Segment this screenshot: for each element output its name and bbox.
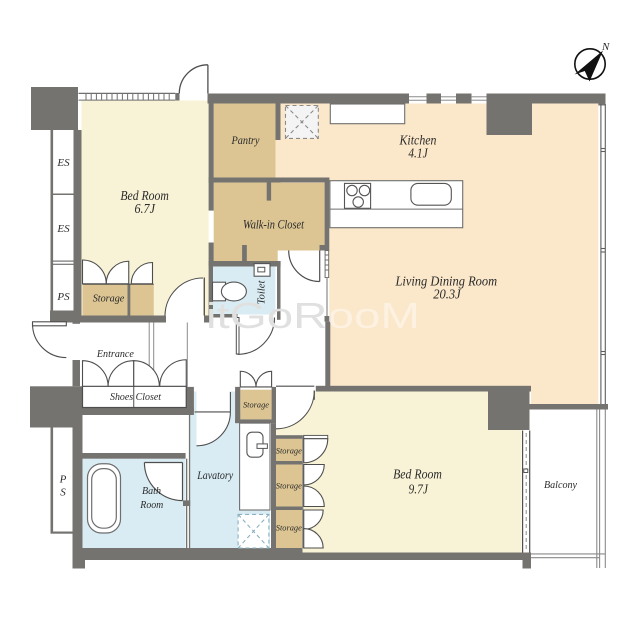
svg-text:Storage: Storage	[93, 294, 125, 305]
svg-text:ES: ES	[56, 157, 70, 169]
svg-text:Storage: Storage	[276, 481, 302, 491]
svg-text:Storage: Storage	[243, 400, 269, 410]
svg-text:6.7J: 6.7J	[134, 202, 155, 217]
svg-text:20.3J: 20.3J	[433, 287, 461, 302]
svg-text:Storage: Storage	[276, 523, 302, 533]
svg-text:Walk-in Closet: Walk-in Closet	[243, 218, 304, 232]
svg-text:Bath: Bath	[142, 486, 161, 497]
svg-text:Storage: Storage	[276, 446, 302, 456]
svg-text:Room: Room	[139, 500, 163, 511]
svg-text:S: S	[60, 487, 66, 499]
svg-text:Entrance: Entrance	[96, 348, 134, 360]
svg-text:PS: PS	[56, 291, 70, 303]
svg-text:Pantry: Pantry	[231, 135, 261, 147]
svg-text:P: P	[59, 474, 67, 486]
svg-text:Bed Room: Bed Room	[393, 468, 442, 483]
svg-text:Balcony: Balcony	[544, 480, 577, 491]
svg-text:ES: ES	[56, 223, 70, 235]
svg-text:Lavatory: Lavatory	[196, 470, 234, 482]
svg-text:Shoes Closet: Shoes Closet	[110, 392, 162, 403]
svg-text:4.1J: 4.1J	[408, 147, 428, 162]
svg-text:9.7J: 9.7J	[409, 483, 429, 498]
svg-text:N: N	[601, 41, 610, 53]
svg-text:Toilet: Toilet	[256, 280, 268, 305]
